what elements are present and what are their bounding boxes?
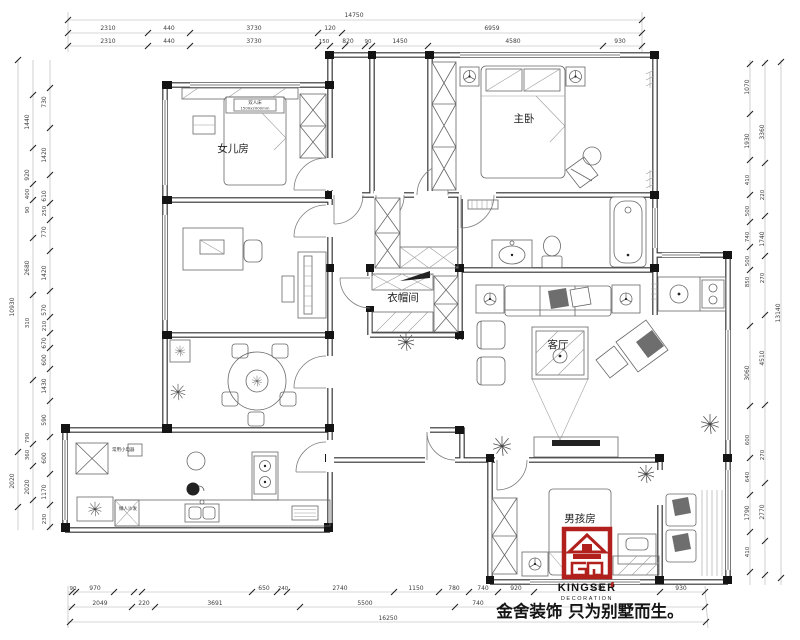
dim-label: 1740 — [759, 231, 766, 246]
windows — [61, 51, 732, 586]
room-label-master: 主卧 — [514, 112, 535, 125]
dim-label: 1790 — [744, 505, 751, 520]
dim-label: 230 — [42, 513, 48, 524]
dim-label: 1150 — [408, 585, 423, 592]
dim-label: 2020 — [9, 473, 16, 488]
dim-label: 1170 — [41, 484, 48, 499]
dim-label: 2049 — [92, 600, 107, 607]
dim-label: 14750 — [344, 12, 363, 19]
dim-label: 640 — [745, 471, 751, 482]
dim-label: 6959 — [484, 25, 499, 32]
dim-label: 920 — [510, 585, 522, 592]
dim-label: 410 — [745, 174, 751, 185]
dim-label: 1440 — [24, 114, 31, 129]
dim-label: 1450 — [392, 38, 407, 45]
room-label-boy: 男孩房 — [564, 512, 596, 525]
dim-label: 590 — [41, 414, 48, 426]
dim-label: 500 — [745, 255, 751, 266]
dim-label: 90 — [365, 39, 372, 45]
dim-label: 90 — [25, 206, 31, 213]
dim-label: 400 — [25, 188, 31, 199]
dim-label: 220 — [760, 189, 766, 200]
dim-label: 16250 — [378, 615, 397, 622]
room-label-living: 客厅 — [548, 338, 569, 351]
dim-label: 310 — [25, 317, 31, 328]
dim-label: 970 — [89, 585, 101, 592]
dim-label: 90 — [70, 586, 77, 592]
dim-label: 790 — [25, 432, 31, 443]
dim-label: 1070 — [744, 79, 751, 94]
furniture-dining-area — [170, 340, 296, 426]
dim-label: 920 — [24, 169, 31, 181]
dim-label: 1420 — [41, 147, 48, 162]
furniture-master-bedroom — [432, 62, 654, 190]
dim-label: 360 — [25, 449, 31, 460]
kitchen-note-label-2: 懒人沙发 — [119, 505, 137, 512]
dim-label: 780 — [448, 585, 460, 592]
dim-label: 1430 — [41, 378, 48, 393]
dim-label: 2310 — [100, 38, 115, 45]
dim-label: 3360 — [759, 124, 766, 139]
dim-label: 570 — [41, 304, 48, 316]
dim-label: 650 — [258, 585, 270, 592]
furniture-kitchen: 常用小电器 懒人沙发 — [76, 443, 330, 526]
floorplan-canvas: 常用小电器 懒人沙发 — [0, 0, 800, 640]
dimensions-left: 730 1420 610 250 770 1420 570 210 670 60… — [9, 57, 53, 530]
dim-label: 270 — [760, 272, 766, 283]
dim-label: 270 — [760, 449, 766, 460]
dim-label: 440 — [163, 38, 175, 45]
dim-label: 2680 — [24, 260, 31, 275]
furniture-kitchenette — [651, 277, 726, 311]
dim-label: 740 — [477, 585, 489, 592]
dim-label: 2740 — [332, 585, 347, 592]
dim-label: 4510 — [759, 350, 766, 365]
dim-label: 3060 — [744, 365, 751, 380]
dim-label: 740 — [472, 600, 484, 607]
furniture-master-bath — [468, 197, 646, 268]
dim-label: 820 — [342, 38, 354, 45]
dim-label: 10930 — [9, 297, 16, 316]
furniture-study-room — [183, 228, 326, 318]
dim-label: 740 — [745, 231, 751, 242]
dim-label: 770 — [41, 226, 48, 238]
dim-label: 500 — [745, 205, 751, 216]
dim-label: 930 — [614, 38, 626, 45]
dim-label: 670 — [41, 337, 48, 349]
dim-label: 3691 — [207, 600, 222, 607]
dim-label: 730 — [41, 96, 48, 108]
furniture-cloakroom — [372, 271, 458, 351]
dim-label: 220 — [138, 600, 150, 607]
dim-label: 2020 — [24, 479, 31, 494]
bed-size-note: 1500x2000mm — [241, 106, 270, 111]
logo-brand-text: KINGSER — [558, 582, 617, 594]
kitchen-note-label: 常用小电器 — [112, 446, 135, 453]
dim-label: 150 — [319, 39, 330, 45]
dim-label: 240 — [278, 586, 289, 592]
room-label-cloak: 衣帽间 — [387, 291, 419, 304]
dim-label: 850 — [745, 276, 751, 287]
dimensions-top: 14750 2310 440 3730 120 6959 2310 440 37… — [65, 12, 645, 52]
dim-label: 3730 — [246, 38, 261, 45]
dim-label: 4580 — [505, 38, 520, 45]
dim-label: 600 — [41, 354, 48, 366]
dim-label: 120 — [324, 25, 336, 32]
dimensions-right: 1070 1930 410 500 740 500 850 3060 600 6… — [744, 59, 784, 585]
dim-label: 600 — [41, 452, 48, 464]
dim-label: 600 — [745, 434, 751, 445]
floorplan-drawing: 常用小电器 懒人沙发 — [0, 0, 800, 640]
dim-label: 13140 — [775, 303, 782, 322]
dim-label: 5500 — [357, 600, 372, 607]
dim-label: 2310 — [100, 25, 115, 32]
dim-label: 1930 — [744, 133, 751, 148]
furniture-corridor-storage — [375, 198, 458, 268]
dim-label: 2770 — [759, 504, 766, 519]
dim-label: 250 — [42, 205, 48, 216]
dim-label: 210 — [42, 320, 48, 331]
furniture-balcony — [666, 490, 722, 576]
dim-label: 930 — [675, 585, 687, 592]
dim-label: 440 — [163, 25, 175, 32]
dim-label: 410 — [745, 546, 751, 557]
dim-label: 3730 — [246, 25, 261, 32]
dim-label: 1420 — [41, 265, 48, 280]
company-slogan: 金舍装饰 只为别墅而生。 — [495, 601, 683, 621]
dim-label: 610 — [41, 190, 48, 202]
room-label-daughter: 女儿房 — [217, 142, 249, 155]
